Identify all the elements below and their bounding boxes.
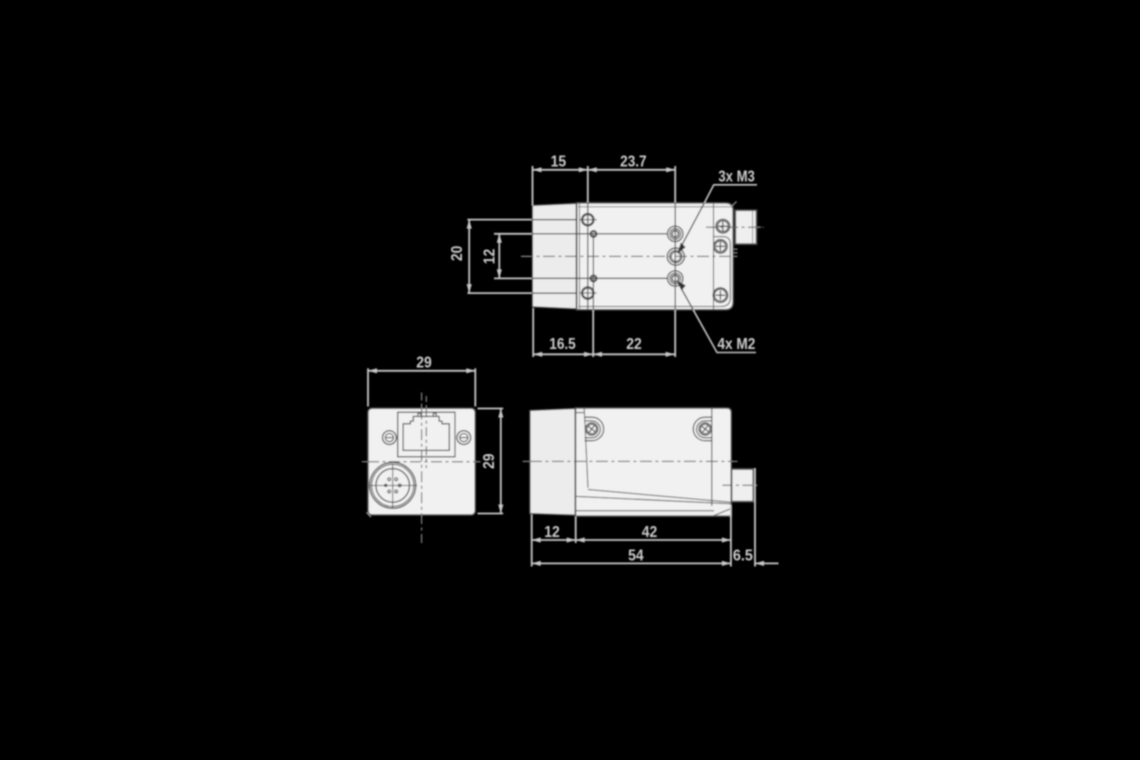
- svg-text:12: 12: [544, 524, 560, 541]
- svg-text:3x M3: 3x M3: [718, 169, 755, 186]
- svg-text:22: 22: [626, 336, 642, 353]
- svg-text:15: 15: [551, 154, 567, 171]
- svg-text:4x M2: 4x M2: [717, 336, 755, 353]
- svg-text:42: 42: [642, 524, 658, 541]
- svg-text:16.5: 16.5: [549, 336, 576, 353]
- svg-text:54: 54: [628, 548, 644, 565]
- svg-text:23.7: 23.7: [620, 154, 647, 171]
- svg-text:20: 20: [449, 246, 466, 262]
- svg-text:6.5: 6.5: [733, 548, 753, 565]
- svg-text:29: 29: [416, 355, 432, 372]
- svg-text:29: 29: [481, 453, 498, 469]
- svg-text:12: 12: [482, 249, 499, 265]
